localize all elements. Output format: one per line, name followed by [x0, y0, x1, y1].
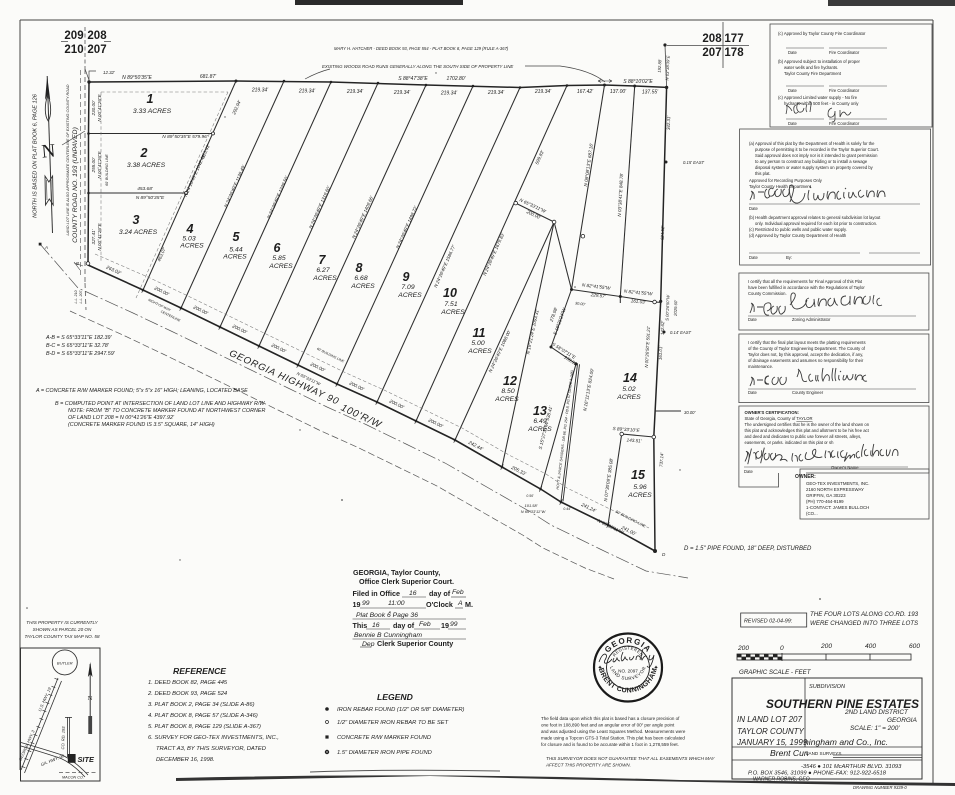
svg-text:1. DEED BOOK 82, PAGE 445: 1. DEED BOOK 82, PAGE 445: [148, 680, 228, 686]
svg-text:day of: day of: [429, 589, 451, 598]
svg-text:Owner's Name: Owner's Name: [831, 465, 859, 470]
svg-text:219.34': 219.34': [440, 91, 458, 97]
svg-text:L.L. 207: L.L. 207: [79, 290, 83, 304]
svg-text:SUBDIVISION: SUBDIVISION: [809, 684, 846, 690]
svg-text:ningham and Co., Inc.: ningham and Co., Inc.: [804, 737, 888, 747]
svg-text:30.00': 30.00': [684, 410, 695, 415]
svg-text:✦: ✦: [653, 665, 658, 672]
svg-text:208: 208: [702, 33, 722, 45]
svg-text:0.56': 0.56': [526, 494, 534, 498]
svg-text:Filed in Office: Filed in Office: [353, 589, 401, 598]
svg-text:453.68': 453.68': [137, 186, 154, 192]
svg-text:OWNER'S CERTIFICATION:: OWNER'S CERTIFICATION:: [745, 410, 799, 415]
svg-text:5.44: 5.44: [229, 247, 242, 254]
svg-text:A: A: [44, 245, 48, 250]
svg-text:GEORGIA: GEORGIA: [887, 717, 917, 724]
svg-text:1: 1: [147, 92, 154, 106]
svg-text:2ND LAND DISTRICT: 2ND LAND DISTRICT: [844, 709, 909, 716]
svg-text:99: 99: [450, 621, 458, 628]
svg-text:CO. RD. 193: CO. RD. 193: [60, 726, 66, 750]
svg-text:(c) Restricted to public well: (c) Restricted to public wells and publi…: [749, 227, 847, 232]
svg-text:Date: Date: [749, 255, 759, 260]
svg-text:7: 7: [319, 253, 327, 267]
svg-text:1.5" DIAMETER IRON PIPE FOUND: 1.5" DIAMETER IRON PIPE FOUND: [337, 750, 432, 756]
svg-text:5.85: 5.85: [272, 255, 285, 262]
svg-text:101.58': 101.58': [525, 503, 538, 508]
svg-text:disposal system or water suppl: disposal system or water supply system o…: [755, 165, 874, 170]
svg-text:219.34': 219.34': [346, 89, 364, 95]
svg-text:ACRES: ACRES: [312, 275, 337, 282]
svg-text:737.14': 737.14': [659, 452, 665, 467]
svg-text:Office Clerk Superior Court.: Office Clerk Superior Court.: [359, 577, 454, 586]
svg-text:AFFECT THIS PROPERTY ARE SHOWN: AFFECT THIS PROPERTY ARE SHOWN.: [545, 763, 631, 768]
svg-text:219.34': 219.34': [251, 88, 269, 94]
svg-text:137.55': 137.55': [642, 90, 659, 96]
svg-text:ACRES: ACRES: [467, 348, 492, 355]
svg-text:161.01': 161.01': [658, 346, 664, 361]
svg-text:16: 16: [409, 590, 417, 597]
svg-text:THIS PROPERTY IS CURRENTLY: THIS PROPERTY IS CURRENTLY: [26, 620, 98, 625]
svg-text:Fire Coordinator: Fire Coordinator: [829, 88, 860, 93]
svg-text:Brent Cun: Brent Cun: [770, 748, 809, 758]
svg-text:9: 9: [403, 270, 410, 284]
svg-text:this plat.: this plat.: [755, 171, 771, 176]
svg-text:60' BUILDING LINE: 60' BUILDING LINE: [105, 154, 109, 186]
svg-text:NO. 2097: NO. 2097: [618, 669, 638, 674]
svg-text:3.24 ACRES: 3.24 ACRES: [119, 229, 158, 236]
svg-text:177: 177: [724, 33, 743, 45]
svg-text:Date: Date: [788, 121, 798, 126]
svg-text:County Commission.: County Commission.: [748, 291, 787, 296]
svg-text:Taylor County Fire Department: Taylor County Fire Department: [784, 71, 842, 76]
svg-text:142.62': 142.62': [660, 321, 666, 336]
svg-text:WERE CHANGED INTO THREE LOTS: WERE CHANGED INTO THREE LOTS: [810, 620, 919, 627]
svg-text:327.41': 327.41': [91, 229, 96, 244]
svg-text:8.50: 8.50: [501, 388, 514, 395]
svg-text:Date: Date: [788, 88, 798, 93]
svg-text:I certify that all the require: I certify that all the requirements for …: [748, 279, 863, 284]
svg-text:11:00: 11:00: [388, 600, 405, 607]
svg-text:GRAPHIC SCALE - FEET: GRAPHIC SCALE - FEET: [739, 669, 812, 676]
svg-text:S 00°26'50"W: S 00°26'50"W: [665, 294, 671, 321]
svg-text:IN LAND LOT 207: IN LAND LOT 207: [737, 715, 802, 724]
svg-text:5.96: 5.96: [633, 484, 646, 491]
svg-text:5.03: 5.03: [182, 236, 195, 243]
svg-text:SITE: SITE: [78, 755, 95, 764]
svg-text:Taylor does not, by this appro: Taylor does not, by this approval, accep…: [748, 352, 863, 357]
svg-text:N 00°41'26"E: N 00°41'26"E: [97, 150, 102, 178]
svg-text:6: 6: [274, 241, 282, 255]
svg-text:S 88°47'38"E: S 88°47'38"E: [398, 76, 428, 82]
svg-text:By:: By:: [786, 255, 792, 260]
svg-text:Zoning Administrator: Zoning Administrator: [792, 317, 831, 322]
svg-text:Said approval does not imply n: Said approval does not imply nor is it i…: [755, 153, 878, 158]
svg-text:1-CONTACT: JAMES BULLOCH: 1-CONTACT: JAMES BULLOCH: [806, 505, 869, 510]
svg-text:and was adjusted using the Lea: and was adjusted using the Least Squares…: [541, 729, 686, 734]
svg-text:to any person to construct any: to any person to construct any building …: [755, 159, 868, 164]
svg-text:easements, or parks. indicate: easements, or parks. indicated on this p…: [745, 440, 835, 445]
svg-text:DECEMBER 16, 1998.: DECEMBER 16, 1998.: [156, 757, 215, 763]
svg-text:THIS SURVEYOR DOES NOT GUARANT: THIS SURVEYOR DOES NOT GUARANTEE THAT AL…: [546, 756, 716, 761]
svg-text:N 00°41'26"E: N 00°41'26"E: [97, 222, 102, 250]
svg-text:(a) Approval of this plat by: (a) Approval of this plat by the Departm…: [749, 141, 875, 146]
svg-text:✦: ✦: [597, 665, 602, 672]
svg-text:0.14' EAST: 0.14' EAST: [670, 330, 691, 335]
svg-text:The undersigned certifies that: The undersigned certifies that he is the…: [745, 422, 870, 427]
svg-text:1/2" DIAMETER IRON REBAR TO BE: 1/2" DIAMETER IRON REBAR TO BE SET: [337, 720, 449, 726]
svg-text:IRON REBAR FOUND (1/2" OR 5/8": IRON REBAR FOUND (1/2" OR 5/8" DIAMETER): [337, 707, 465, 713]
svg-text:MARY H. HATCHER - DEED BOOK: MARY H. HATCHER - DEED BOOK 93, PAGE 554…: [334, 46, 509, 51]
svg-text:N 89°50'35"E: N 89°50'35"E: [136, 195, 165, 201]
svg-text:624.52': 624.52': [660, 226, 666, 241]
svg-text:N 00°41'26"E: N 00°41'26"E: [97, 93, 102, 121]
svg-text:MACON CO.: MACON CO.: [62, 776, 84, 780]
svg-text:THE FOUR LOTS ALONG CO.RD. 193: THE FOUR LOTS ALONG CO.RD. 193: [810, 611, 919, 618]
svg-text:(b) Health department approva: (b) Health department approval relates t…: [749, 215, 881, 220]
svg-text:5. PLAT BOOK 8, PAGE 129 (S: 5. PLAT BOOK 8, PAGE 129 (SLIDE A-367): [148, 724, 261, 730]
svg-text:219.34': 219.34': [393, 90, 411, 96]
svg-text:ACRES: ACRES: [268, 263, 293, 270]
svg-text:O'Clock: O'Clock: [426, 600, 453, 609]
svg-text:NORTH IS BASED ON PLAT BOOK 6,: NORTH IS BASED ON PLAT BOOK 6, PAGE 126: [33, 93, 39, 218]
svg-text:SCALE: 1" = 200': SCALE: 1" = 200': [850, 725, 900, 732]
svg-text:7.51: 7.51: [444, 301, 457, 308]
svg-text:3: 3: [133, 213, 140, 227]
svg-text:D = 1.5" PIPE FOUND, 18" DEE: D = 1.5" PIPE FOUND, 18" DEEP, DISTURBED: [684, 546, 812, 552]
svg-text:Fire Coordinator: Fire Coordinator: [829, 50, 860, 55]
svg-text:GEORGIA, Taylor County,: GEORGIA, Taylor County,: [353, 568, 440, 577]
svg-text:600: 600: [909, 643, 920, 650]
svg-text:ACRES: ACRES: [616, 394, 641, 401]
svg-text:L.L. 210: L.L. 210: [74, 291, 78, 304]
svg-text:A: A: [457, 600, 463, 607]
svg-text:B-D = S 65°33'11"E 2947.59: B-D = S 65°33'11"E 2947.59': [46, 351, 116, 357]
svg-text:11: 11: [473, 326, 486, 340]
svg-text:BUTLER: BUTLER: [57, 661, 73, 666]
svg-text:of the County of Taylor Engine: of the County of Taylor Engineering Depa…: [748, 346, 866, 351]
svg-text:178: 178: [724, 47, 744, 59]
svg-text:A-B = S 65°33'11"E 182.39: A-B = S 65°33'11"E 182.39': [45, 335, 112, 341]
svg-text:6.27: 6.27: [316, 267, 329, 274]
svg-text:for closure and is found to be: for closure and is found to be accurate …: [541, 742, 679, 747]
svg-text:N: N: [41, 140, 57, 162]
svg-text:one foot in 108,890 feet and a: one foot in 108,890 feet and an angular …: [541, 723, 675, 728]
svg-text:Date: Date: [788, 50, 798, 55]
svg-text:Bennie B Cunningham: Bennie B Cunningham: [354, 632, 422, 639]
svg-text:State of Georgia, County of T: State of Georgia, County of TAYLOR: [745, 416, 813, 421]
svg-text:B-C = S 65°33'11"E 32.7: B-C = S 65°33'11"E 32.78': [46, 343, 110, 349]
svg-text:Feb: Feb: [452, 589, 464, 596]
svg-text:210: 210: [64, 44, 83, 56]
svg-text:ACRES: ACRES: [440, 309, 465, 316]
svg-text:CONCRETE R/W MARKER FOUND: CONCRETE R/W MARKER FOUND: [337, 735, 431, 741]
svg-text:Date: Date: [744, 469, 754, 474]
svg-text:REFERENCE: REFERENCE: [173, 666, 226, 676]
svg-text:only. Individual approval requ: only. Individual approval required for e…: [755, 221, 877, 226]
svg-text:7.09: 7.09: [401, 284, 414, 291]
svg-text:(b) Approved subject to insta: (b) Approved subject to installation of …: [778, 59, 861, 64]
svg-text:ACRES: ACRES: [179, 243, 204, 250]
svg-text:LEGEND: LEGEND: [377, 692, 413, 702]
svg-text:-3546 ● 101 McARTHUR BLVD.: -3546 ● 101 McARTHUR BLVD. 31093: [801, 764, 902, 770]
svg-text:(c) Approved by Taylor County: (c) Approved by Taylor County Fire Coord…: [778, 31, 866, 36]
svg-text:TAYLOR COUNTY TAX MAP NO. 58: TAYLOR COUNTY TAX MAP NO. 58: [24, 634, 99, 639]
svg-text:Date: Date: [748, 390, 758, 395]
svg-text:207: 207: [702, 47, 721, 59]
svg-text:5.02: 5.02: [622, 386, 635, 393]
svg-text:OF LAND LOT 208 = N 00°41'26: OF LAND LOT 208 = N 00°41'26"E 4397.92': [68, 415, 175, 421]
svg-text:99: 99: [362, 600, 370, 607]
svg-text:3.33 ACRES: 3.33 ACRES: [133, 108, 172, 115]
svg-text:N 89°50'35"E 579.96': N 89°50'35"E 579.96': [162, 134, 209, 140]
svg-text:192.88': 192.88': [657, 59, 663, 73]
svg-text:0: 0: [780, 645, 784, 652]
svg-text:B = COMPUTED POINT AT INTERS: B = COMPUTED POINT AT INTERSECTION OF LA…: [55, 401, 265, 407]
svg-text:137.00': 137.00': [610, 89, 627, 95]
svg-text:209: 209: [64, 30, 83, 42]
svg-text:SHOWN AS PARCEL 20 ON: SHOWN AS PARCEL 20 ON: [33, 627, 92, 632]
svg-text:342.31': 342.31': [666, 116, 672, 131]
svg-text:N 89°50'35"E: N 89°50'35"E: [122, 75, 152, 81]
svg-text:N: N: [88, 695, 93, 702]
svg-text:of drainage easements and assu: of drainage easements and assumes no res…: [748, 358, 864, 363]
svg-text:(CO...: (CO...: [806, 511, 818, 516]
svg-text:219.34': 219.34': [487, 90, 505, 96]
svg-text:19: 19: [353, 600, 361, 609]
svg-text:Plat Book 6 Page 36: Plat Book 6 Page 36: [356, 612, 418, 619]
svg-text:1702.80': 1702.80': [446, 76, 466, 82]
svg-text:Clerk Superior County: Clerk Superior County: [377, 639, 453, 648]
svg-text:ACRES: ACRES: [397, 292, 422, 299]
svg-text:208: 208: [87, 30, 107, 42]
svg-text:made using a Topcon GTS-3 Tota: made using a Topcon GTS-3 Total Station.…: [541, 736, 685, 741]
svg-text:have been fulfilled in accorda: have been fulfilled in accordance with t…: [748, 285, 865, 290]
svg-text:200: 200: [737, 645, 749, 652]
svg-text:(CONCRETE MARKER FOUND IS 3.5": (CONCRETE MARKER FOUND IS 3.5" SQUARE, 1…: [68, 422, 215, 428]
svg-text:ACRES: ACRES: [222, 254, 247, 261]
svg-text:2. DEED BOOK 93, PAGE 524: 2. DEED BOOK 93, PAGE 524: [147, 691, 227, 697]
svg-text:this plat and acknowledges thi: this plat and acknowledges this plat and…: [745, 428, 870, 433]
svg-text:Taylor County Health Departmen: Taylor County Health Department: [749, 184, 812, 189]
svg-text:6. SURVEY FOR GEO-TEX INVESTM: 6. SURVEY FOR GEO-TEX INVESTMENTS, INC.,: [148, 735, 279, 741]
svg-text:I certify that the final plat: I certify that the final plat layout mee…: [748, 340, 866, 345]
svg-text:Date: Date: [749, 206, 759, 211]
svg-text:REVISED 02-04-99:: REVISED 02-04-99:: [744, 619, 793, 625]
svg-text:400: 400: [865, 643, 876, 650]
svg-text:207: 207: [87, 44, 106, 56]
svg-text:219.34': 219.34': [298, 89, 316, 95]
svg-text:maintenance.: maintenance.: [748, 364, 773, 369]
svg-text:GEO-TEX INVESTMENTS, INC.: GEO-TEX INVESTMENTS, INC.: [806, 481, 869, 486]
svg-text:N 65°33'11"W: N 65°33'11"W: [521, 509, 547, 514]
svg-text:This: This: [353, 621, 368, 630]
svg-text:200: 200: [820, 643, 832, 650]
svg-text:8: 8: [356, 261, 363, 275]
svg-text:water wells and fire hydrants.: water wells and fire hydrants.: [784, 65, 838, 70]
svg-text:3. PLAT BOOK 2, PAGE 34 (: 3. PLAT BOOK 2, PAGE 34 (SLIDE A-86): [148, 702, 255, 708]
svg-text:143.51': 143.51': [626, 437, 641, 443]
svg-text:JANUARY 15, 1999: JANUARY 15, 1999: [736, 738, 808, 747]
svg-text:6.68: 6.68: [354, 275, 367, 282]
svg-text:Date: Date: [748, 317, 758, 322]
svg-text:5.00: 5.00: [471, 340, 484, 347]
svg-text:(d) Approved by Taylor Coun: (d) Approved by Taylor County Department…: [749, 233, 847, 238]
svg-text:(PH) 770-464-9199: (PH) 770-464-9199: [806, 499, 844, 504]
svg-text:0.44': 0.44': [563, 507, 571, 511]
svg-text:The field data upon which this: The field data upon which this plat is b…: [541, 716, 680, 721]
svg-text:12: 12: [503, 374, 517, 388]
svg-text:M.: M.: [465, 600, 473, 609]
svg-text:10: 10: [443, 286, 457, 300]
svg-text:4: 4: [186, 222, 194, 236]
svg-text:255.00': 255.00': [91, 157, 96, 173]
svg-text:2: 2: [140, 146, 148, 160]
svg-text:19: 19: [441, 621, 449, 630]
svg-text:EXISTING WOODS ROAD RUNS GENER: EXISTING WOODS ROAD RUNS GENERALLY ALONG…: [322, 64, 513, 69]
svg-text:230.00': 230.00': [91, 100, 96, 116]
svg-text:A = CONCRETE R/W MARKER FOUN: A = CONCRETE R/W MARKER FOUND; 5"x 5"x 1…: [35, 388, 248, 394]
svg-text:purpose of permitting it to be: purpose of permitting it to be recorded …: [755, 147, 879, 152]
svg-text:TRACT A3, BY THIS SURVEYOR, DA: TRACT A3, BY THIS SURVEYOR, DATED: [156, 746, 266, 752]
svg-text:ACRES: ACRES: [494, 396, 519, 403]
svg-text:3.38 ACRES: 3.38 ACRES: [127, 162, 166, 169]
svg-text:681.87': 681.87': [200, 74, 217, 80]
svg-text:12.32': 12.32': [103, 70, 115, 75]
svg-text:ACRES: ACRES: [350, 283, 375, 290]
svg-text:County Engineer: County Engineer: [792, 390, 824, 395]
svg-text:ACRES: ACRES: [627, 492, 652, 499]
svg-text:LAND LOT LINE IS ALSO APPROXIM: LAND LOT LINE IS ALSO APPROXIMATE CENTER…: [66, 84, 70, 235]
svg-text:WARNER ROBINS, GEO: WARNER ROBINS, GEO: [753, 777, 810, 783]
svg-text:167.42': 167.42': [577, 89, 594, 95]
svg-text:15: 15: [631, 468, 646, 482]
svg-text:219.34': 219.34': [534, 89, 552, 95]
svg-text:OWNER:: OWNER:: [795, 474, 816, 480]
svg-text:GRIFFIN, GA 30223: GRIFFIN, GA 30223: [806, 493, 846, 498]
svg-text:COUNTY ROAD NO. 193 (UNPAVED): COUNTY ROAD NO. 193 (UNPAVED): [72, 127, 79, 243]
svg-text:S 88°10'02"E: S 88°10'02"E: [623, 79, 653, 85]
svg-text:Approved for Recording Purpose: Approved for Recording Purposes Only: [749, 178, 823, 183]
svg-text:day of: day of: [393, 621, 415, 630]
svg-text:5: 5: [233, 230, 241, 244]
svg-text:14: 14: [623, 371, 637, 385]
svg-text:and deed and dedicates to publ: and deed and dedicates to public use for…: [745, 434, 862, 439]
svg-text:2029.60': 2029.60': [673, 300, 679, 317]
svg-text:DRAWING NUMBER 9339-0: DRAWING NUMBER 9339-0: [853, 785, 907, 790]
svg-text:2160 NORTH EXPRESSWAY: 2160 NORTH EXPRESSWAY: [806, 487, 864, 492]
svg-text:4. PLAT BOOK 8, PAGE 57 (: 4. PLAT BOOK 8, PAGE 57 (SLIDE A-346): [148, 713, 258, 719]
svg-text:Feb: Feb: [419, 621, 431, 628]
svg-text:TAYLOR COUNTY: TAYLOR COUNTY: [737, 727, 804, 736]
svg-text:(c) Approved Limited water su: (c) Approved Limited water supply - No f…: [778, 95, 858, 100]
svg-text:NOTE: FROM "B" TO CONCRETE MAR: NOTE: FROM "B" TO CONCRETE MARKER FOUND …: [68, 408, 266, 414]
svg-text:0.15' EAST: 0.15' EAST: [683, 160, 704, 165]
svg-text:ACRES: ACRES: [527, 426, 552, 433]
svg-text:16: 16: [372, 622, 380, 629]
